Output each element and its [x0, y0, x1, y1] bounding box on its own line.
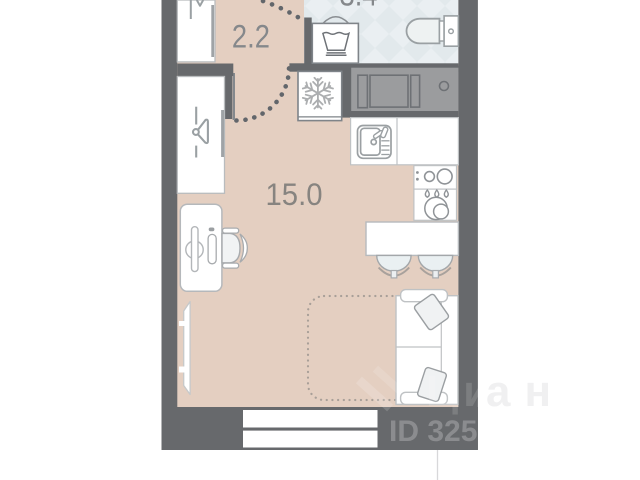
svg-text:3.4: 3.4	[340, 0, 378, 13]
svg-text:15.0: 15.0	[266, 176, 323, 212]
svg-text:2.2: 2.2	[232, 19, 270, 55]
svg-text:ан: ан	[486, 367, 565, 416]
svg-text:ID 325: ID 325	[389, 415, 477, 448]
